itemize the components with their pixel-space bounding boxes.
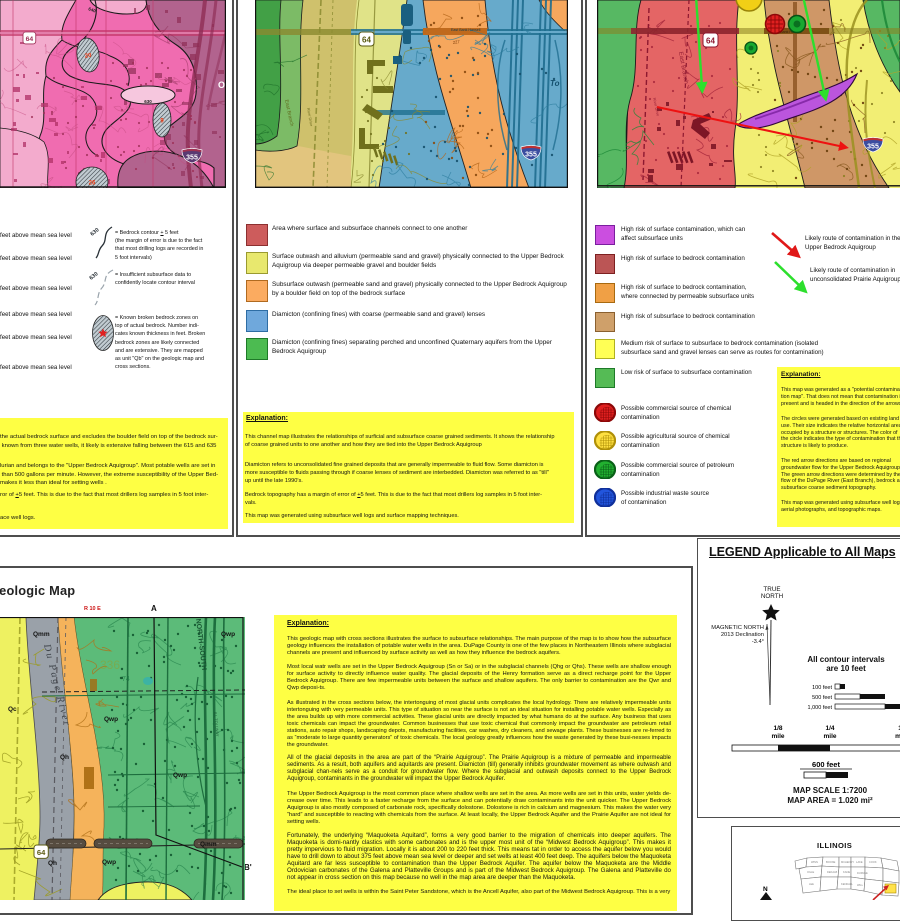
svg-text:Qmm: Qmm	[200, 841, 217, 848]
svg-text:Qh: Qh	[60, 754, 69, 761]
svg-text:O: O	[218, 80, 225, 90]
svg-text:355: 355	[525, 152, 537, 159]
svg-text:1/8: 1/8	[773, 725, 782, 732]
svg-text:m: m	[895, 733, 900, 740]
svg-text:64: 64	[362, 36, 371, 45]
svg-text:630: 630	[89, 271, 99, 281]
svg-text:LAKE: LAKE	[856, 860, 863, 864]
svg-text:1/4: 1/4	[825, 725, 834, 732]
svg-text:Qc: Qc	[8, 706, 17, 713]
svg-text:mile: mile	[823, 733, 836, 740]
svg-text:Qwp: Qwp	[221, 631, 235, 638]
svg-text:74: 74	[122, 676, 130, 683]
svg-text:KENDALL: KENDALL	[841, 882, 853, 886]
svg-text:64: 64	[26, 36, 34, 43]
svg-text:64: 64	[706, 37, 715, 46]
svg-text:Qwp: Qwp	[173, 772, 187, 779]
svg-text:BOONE: BOONE	[826, 860, 836, 864]
svg-text:Qh: Qh	[48, 860, 57, 867]
svg-text:mile: mile	[771, 733, 784, 740]
svg-text:N: N	[763, 886, 768, 893]
svg-text:Qmm: Qmm	[33, 631, 50, 638]
svg-text:100 feet: 100 feet	[812, 685, 832, 691]
svg-text:355: 355	[867, 144, 879, 151]
svg-text:MCHENRY: MCHENRY	[841, 860, 854, 864]
svg-text:DEKALB: DEKALB	[827, 870, 838, 874]
svg-text:LEE: LEE	[809, 882, 814, 886]
svg-text:WILL: WILL	[857, 883, 864, 887]
svg-text:64: 64	[37, 848, 46, 857]
svg-text:KANE: KANE	[843, 870, 850, 874]
svg-text:26: 26	[89, 180, 96, 186]
svg-text:Qwp: Qwp	[104, 716, 118, 723]
svg-text:630: 630	[144, 99, 152, 104]
svg-text:336: 336	[100, 658, 120, 672]
svg-text:DUPAGE: DUPAGE	[857, 871, 868, 875]
svg-text:To: To	[550, 79, 560, 88]
svg-text:COOK: COOK	[869, 860, 877, 864]
svg-text:500 feet: 500 feet	[812, 695, 832, 701]
svg-text:Qwp: Qwp	[102, 859, 116, 866]
svg-text:East Bank Hansell: East Bank Hansell	[451, 28, 481, 32]
svg-text:WINN: WINN	[811, 860, 818, 864]
svg-text:355: 355	[186, 155, 198, 162]
svg-text:227: 227	[452, 39, 460, 45]
svg-text:600 feet: 600 feet	[812, 760, 840, 769]
svg-text:630: 630	[90, 227, 100, 237]
svg-text:OGLE: OGLE	[807, 870, 814, 874]
svg-text:1,000 feet: 1,000 feet	[808, 705, 833, 711]
